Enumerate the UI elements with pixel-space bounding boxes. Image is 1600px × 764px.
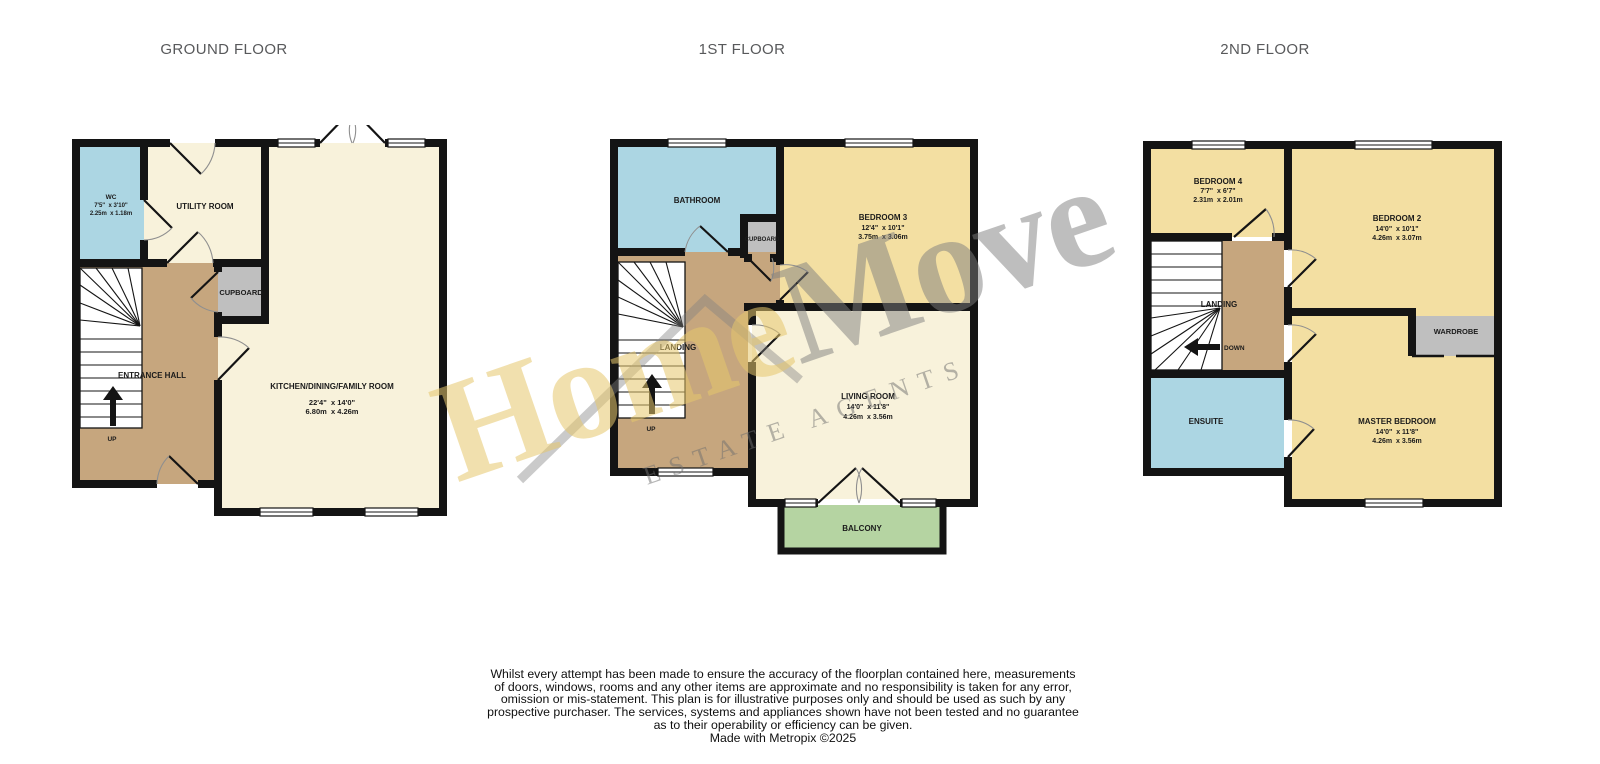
down-label: DOWN [1224,345,1245,352]
disclaimer-line: prospective purchaser. The services, sys… [283,706,1283,719]
wc-label: WC [106,194,117,201]
living-label: LIVING ROOM [841,392,895,401]
wardrobe-label: WARDROBE [1434,327,1479,336]
ground-floor-plan: WC 7'5" x 3'10" 2.25m x 1.18m UTILITY RO… [60,125,460,525]
stairs-first [618,262,685,418]
bedroom4-dims-imperial: 7'7" x 6'7" [1200,188,1235,195]
up-label-gf: UP [107,436,117,443]
balcony-label: BALCONY [842,524,882,533]
second-floor-title: 2ND FLOOR [1220,41,1309,58]
room-wardrobe [1416,316,1498,356]
living-dims-imperial: 14'0" x 11'8" [847,404,890,411]
living-dims-metric: 4.26m x 3.56m [843,414,892,421]
bedroom3-dims-metric: 3.75m x 3.06m [858,234,907,241]
wc-dims-metric: 2.25m x 1.18m [90,211,132,217]
landing-2f-label: LANDING [1201,300,1237,309]
second-floor-plan: BEDROOM 4 7'7" x 6'7" 2.31m x 2.01m BEDR… [1135,130,1515,520]
master-dims-imperial: 14'0" x 11'8" [1376,429,1419,436]
bedroom2-dims-metric: 4.26m x 3.07m [1372,235,1421,242]
bedroom4-label: BEDROOM 4 [1194,177,1243,186]
floorplan-page: GROUND FLOOR 1ST FLOOR 2ND FLOOR [0,0,1600,764]
first-floor-title: 1ST FLOOR [699,41,786,58]
disclaimer-line: Whilst every attempt has been made to en… [283,668,1283,681]
kitchen-dims-imperial: 22'4" x 14'0" [309,398,356,407]
up-label-1f: UP [646,426,656,433]
master-dims-metric: 4.26m x 3.56m [1372,438,1421,445]
landing-1f-label: LANDING [660,343,696,352]
bedroom3-label: BEDROOM 3 [859,213,908,222]
utility-label: UTILITY ROOM [176,202,234,211]
kitchen-label: KITCHEN/DINING/FAMILY ROOM [270,382,394,391]
stairs-ground [80,268,142,428]
bedroom2-label: BEDROOM 2 [1373,214,1422,223]
bedroom2-dims-imperial: 14'0" x 10'1" [1375,226,1418,233]
ground-floor-title: GROUND FLOOR [160,41,287,58]
bedroom4-dims-metric: 2.31m x 2.01m [1193,197,1242,204]
master-label: MASTER BEDROOM [1358,417,1436,426]
bathroom-label: BATHROOM [674,196,721,205]
cupboard-gf-label: CUPBOARD [219,288,263,297]
metropix-credit: Made with Metropix ©2025 [283,732,1283,745]
wc-dims-imperial: 7'5" x 3'10" [94,203,128,209]
entrance-hall-label: ENTRANCE HALL [118,371,186,380]
bedroom3-dims-imperial: 12'4" x 10'1" [861,225,904,232]
kitchen-dims-metric: 6.80m x 4.26m [306,407,359,416]
first-floor-plan: BATHROOM CUPBOARD BEDROOM 3 12'4" x 10'1… [595,130,995,565]
ensuite-label: ENSUITE [1189,417,1224,426]
disclaimer-line: as to their operability or efficiency ca… [283,719,1283,732]
disclaimer: Whilst every attempt has been made to en… [283,668,1283,744]
cupboard-1f-label: CUPBOARD [745,237,780,243]
